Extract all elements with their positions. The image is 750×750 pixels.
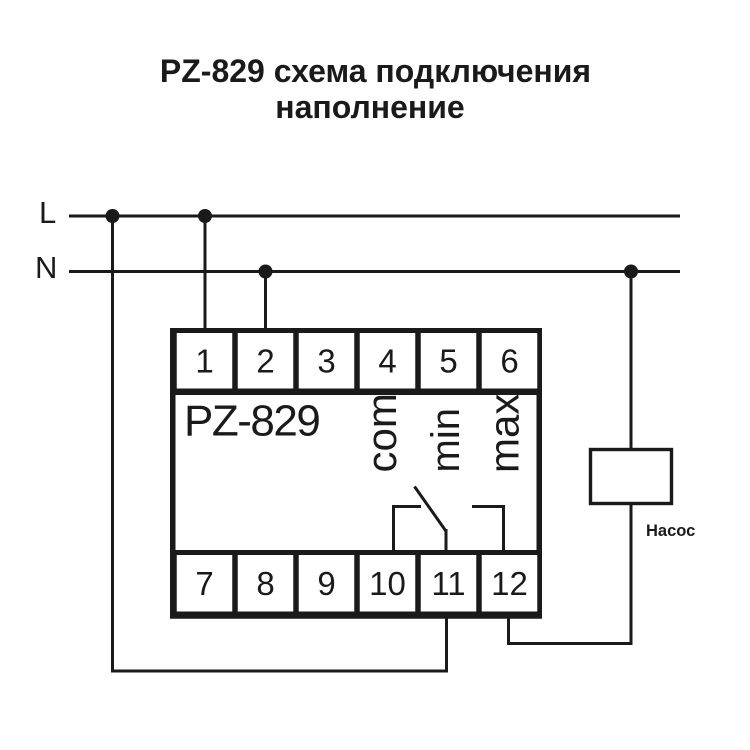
svg-text:com: com: [358, 393, 405, 472]
svg-text:4: 4: [378, 343, 396, 380]
svg-text:7: 7: [195, 565, 213, 602]
svg-text:5: 5: [439, 343, 457, 380]
svg-text:min: min: [424, 408, 468, 472]
svg-text:1: 1: [195, 343, 213, 380]
svg-text:max: max: [481, 394, 528, 473]
svg-text:N: N: [35, 250, 57, 285]
svg-text:11: 11: [431, 565, 465, 602]
svg-text:10: 10: [369, 565, 406, 602]
svg-text:9: 9: [317, 565, 335, 602]
svg-text:6: 6: [500, 343, 518, 380]
svg-text:Насос: Насос: [646, 522, 695, 540]
svg-text:PZ-829: PZ-829: [184, 397, 319, 446]
svg-text:L: L: [39, 195, 56, 230]
svg-text:3: 3: [317, 343, 335, 380]
svg-text:8: 8: [256, 565, 274, 602]
svg-text:наполнение: наполнение: [275, 89, 464, 125]
svg-text:2: 2: [256, 343, 274, 380]
svg-text:PZ-829 схема подключения: PZ-829 схема подключения: [160, 53, 591, 89]
svg-text:12: 12: [491, 565, 528, 602]
